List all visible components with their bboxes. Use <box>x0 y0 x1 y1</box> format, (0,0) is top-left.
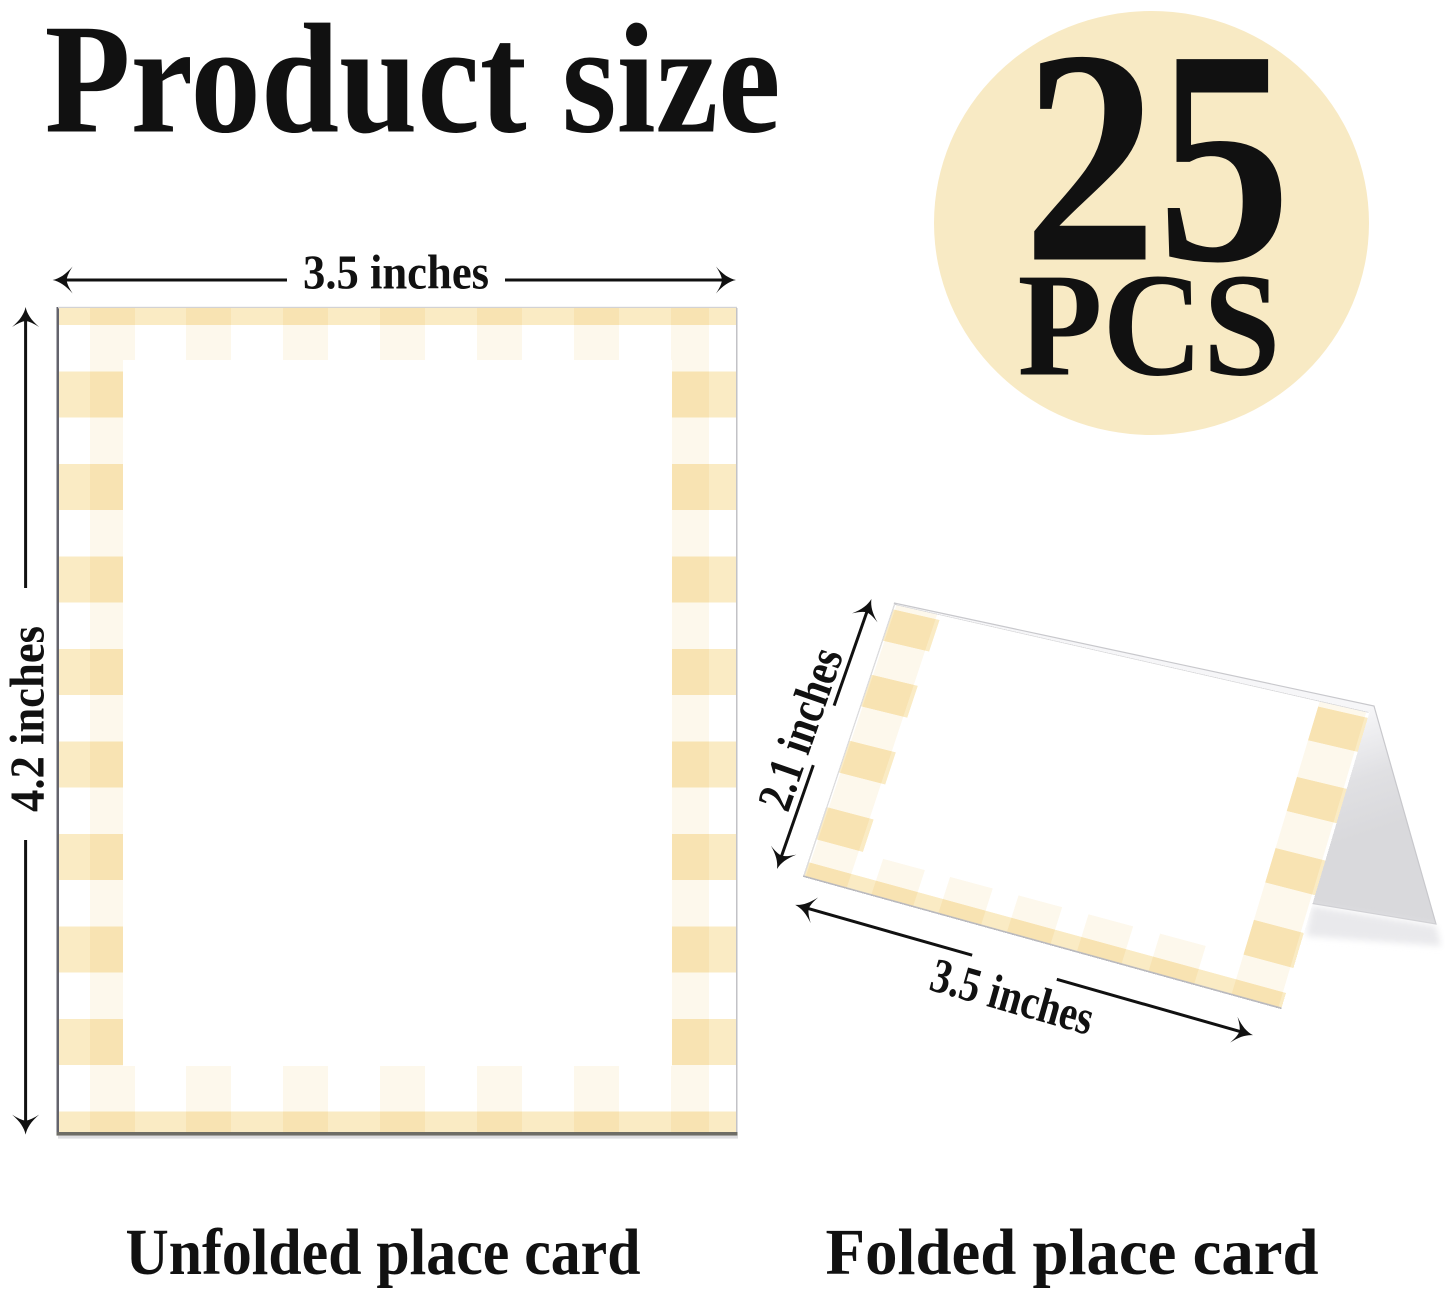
svg-text:4.2 inches: 4.2 inches <box>0 626 55 812</box>
svg-text:3.5 inches: 3.5 inches <box>303 245 489 300</box>
svg-text:Product size: Product size <box>45 0 781 166</box>
svg-text:PCS: PCS <box>1018 244 1281 408</box>
svg-text:Unfolded place card: Unfolded place card <box>126 1216 641 1289</box>
svg-text:Folded place card: Folded place card <box>826 1216 1319 1289</box>
